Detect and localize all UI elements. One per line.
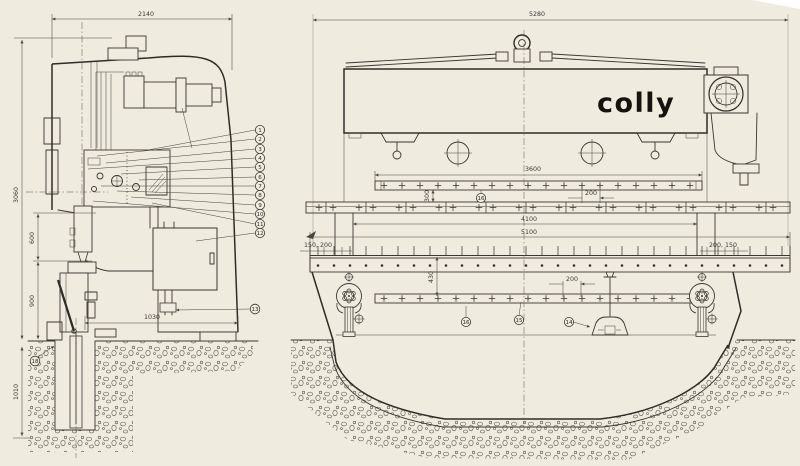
- pedal-pad: [95, 329, 116, 337]
- balloon-11-label: 11: [256, 222, 264, 228]
- dim-right-offsets: 200, 150: [709, 242, 737, 249]
- balloon-2: 2: [255, 134, 264, 143]
- die-block: [68, 262, 96, 273]
- balloon-18: 18: [30, 356, 40, 366]
- balloon-6-label: 6: [258, 175, 262, 181]
- balloon-12-label: 12: [256, 231, 263, 237]
- dim-4100: 4100: [521, 216, 537, 223]
- dim-2140: 2140: [138, 11, 154, 18]
- cable-grip-right: [540, 52, 552, 61]
- balloon-8-label: 8: [258, 193, 262, 199]
- blueprint-page: 2140 3060 600 900 1030 1010 1 2 3 4 5 6: [0, 0, 800, 466]
- balloon-13: 13: [250, 304, 260, 314]
- dim-5280: 5280: [529, 11, 545, 18]
- dim-200-lower: 200: [566, 276, 578, 283]
- dim-1030: 1030: [144, 314, 160, 321]
- balloon-10-label: 10: [256, 212, 264, 218]
- balloon-6: 6: [255, 172, 264, 181]
- cable-grip-left: [496, 52, 508, 61]
- lower-bolt-strip: [375, 294, 700, 303]
- dim-3060: 3060: [13, 187, 20, 203]
- balloon-1-label: 1: [258, 128, 262, 134]
- balloon-16-lower: 16: [461, 317, 470, 326]
- balloon-15-label: 15: [515, 318, 523, 324]
- balloon-16-upper: 16: [476, 193, 485, 202]
- cable-connector: [160, 303, 176, 312]
- colly-logo: colly: [597, 88, 675, 119]
- motor-flange: [176, 78, 186, 112]
- balloon-10: 10: [255, 209, 264, 218]
- motor-body: [186, 84, 212, 106]
- dim-430: 430: [428, 271, 435, 283]
- dim-600: 600: [29, 232, 36, 244]
- dim-left-offsets: 150, 200: [304, 242, 332, 249]
- balloon-9: 9: [255, 200, 264, 209]
- balloon-3: 3: [255, 144, 264, 153]
- balloon-1: 1: [255, 125, 264, 134]
- balloon-14: 14: [564, 317, 573, 326]
- balloon-7-label: 7: [258, 184, 262, 190]
- technical-drawing: 2140 3060 600 900 1030 1010 1 2 3 4 5 6: [0, 0, 800, 466]
- balloon-12: 12: [255, 228, 264, 237]
- dim-1010: 1010: [13, 384, 20, 400]
- balloon-16-upper-label: 16: [477, 196, 485, 202]
- balloon-14-label: 14: [565, 320, 573, 326]
- bed-beam: [310, 258, 790, 272]
- dim-200-upper: 200: [585, 190, 597, 197]
- motor-endcap: [212, 88, 221, 102]
- balloon-3-label: 3: [258, 147, 262, 153]
- balloon-9-label: 9: [258, 203, 262, 209]
- balloon-5: 5: [255, 162, 264, 171]
- balloon-18-label: 18: [31, 359, 39, 365]
- balloon-11: 11: [255, 219, 264, 228]
- rear-foot-pad: [200, 332, 236, 341]
- cabinet-box: [153, 228, 217, 290]
- balloon-7: 7: [255, 181, 264, 190]
- balloon-15: 15: [514, 315, 523, 324]
- balloon-5-label: 5: [258, 165, 262, 171]
- pump-coupling: [144, 82, 176, 108]
- dim-900: 900: [29, 295, 36, 307]
- bracket-foot: [733, 164, 759, 173]
- balloon-8: 8: [255, 190, 264, 199]
- die-rail: [306, 202, 790, 213]
- top-box-bracket: [108, 48, 138, 60]
- dim-300: 300: [424, 190, 431, 202]
- balloon-13-label: 13: [251, 307, 259, 313]
- balloon-16-lower-label: 16: [462, 320, 470, 326]
- balloon-2-label: 2: [258, 137, 262, 143]
- balloon-4: 4: [255, 153, 264, 162]
- punch-clamp-strip: [375, 181, 702, 190]
- valve-block: [124, 76, 144, 108]
- dim-3600: 3600: [525, 166, 541, 173]
- dim-5100: 5100: [521, 229, 537, 236]
- balloon-4-label: 4: [258, 156, 262, 162]
- eye-base: [514, 49, 530, 62]
